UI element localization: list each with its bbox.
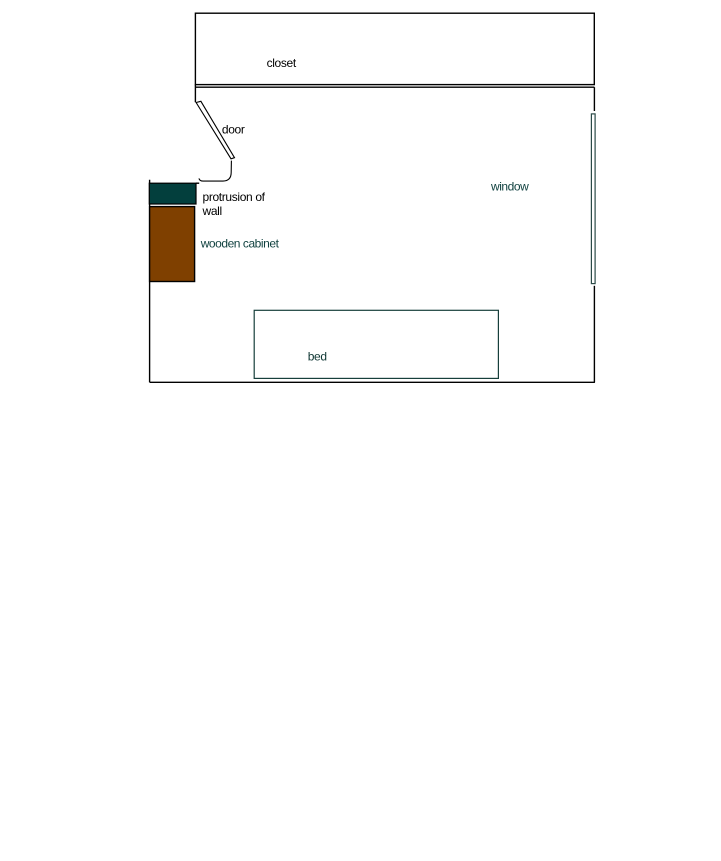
svg-text:wooden cabinet: wooden cabinet — [200, 236, 280, 250]
svg-text:wall: wall — [202, 204, 222, 218]
svg-text:protrusion of: protrusion of — [203, 190, 266, 204]
svg-text:window: window — [490, 180, 529, 194]
svg-text:closet: closet — [267, 56, 297, 70]
svg-text:bed: bed — [308, 349, 327, 363]
svg-text:door: door — [222, 123, 245, 137]
